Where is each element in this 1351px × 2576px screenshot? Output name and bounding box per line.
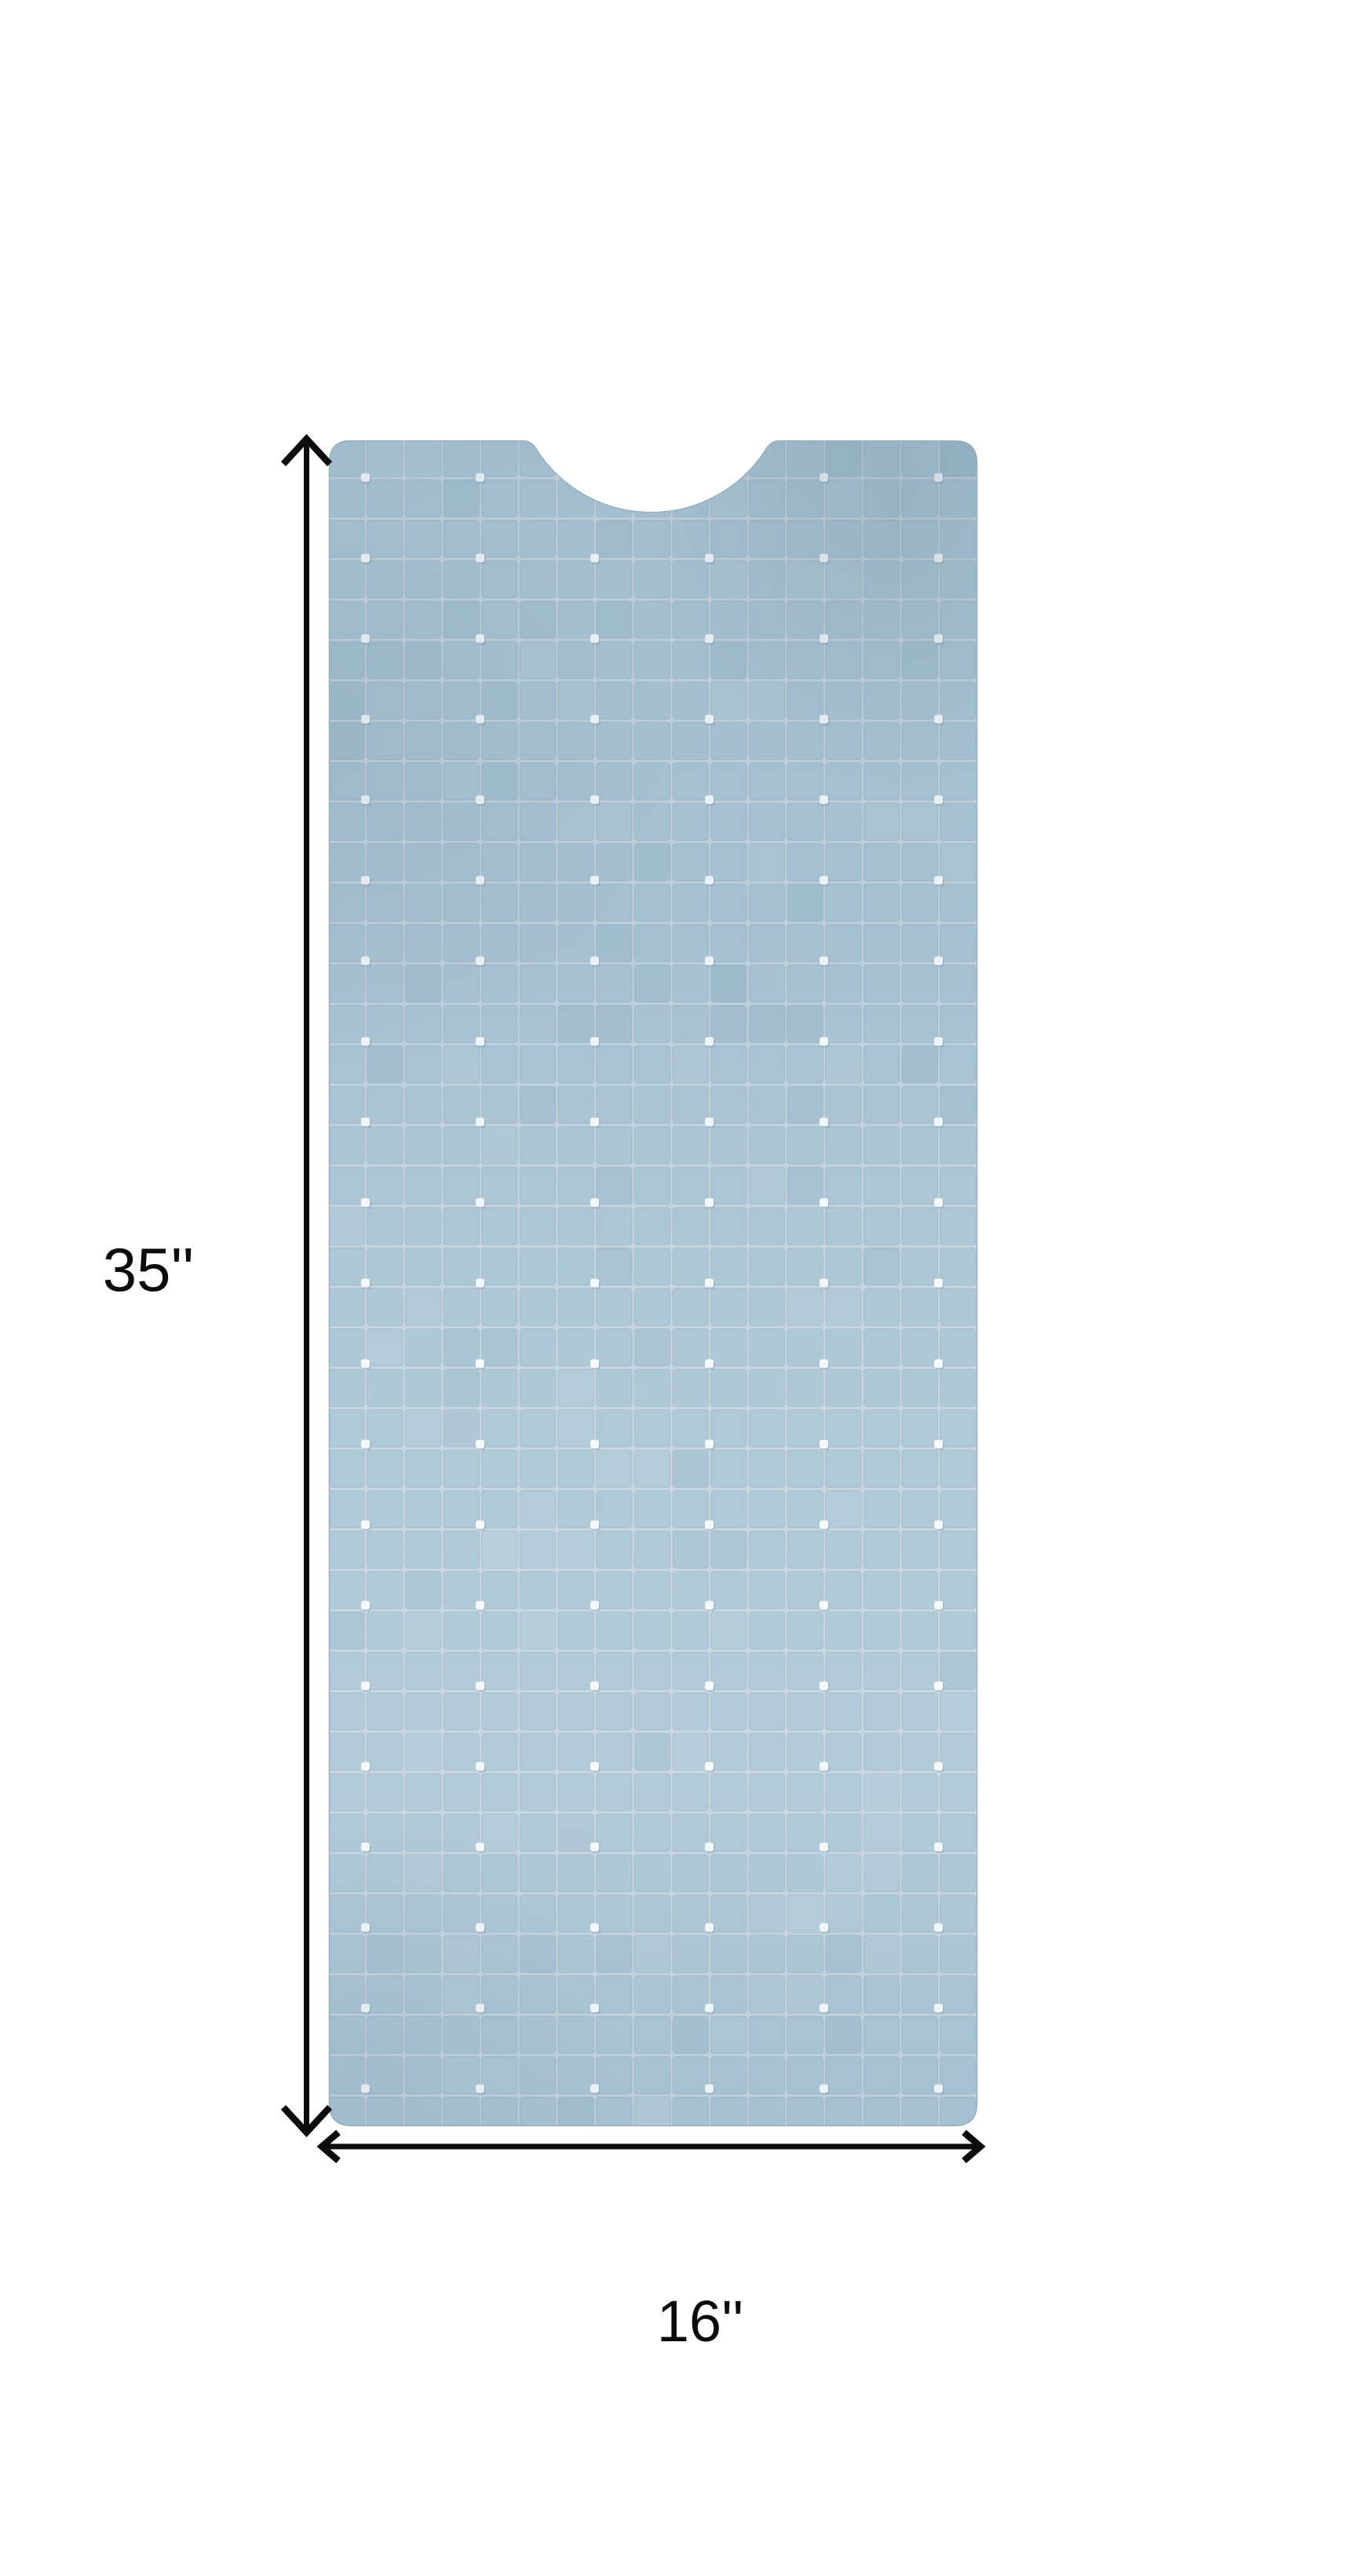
svg-text:16'': 16'': [657, 2289, 744, 2354]
svg-text:35'': 35'': [103, 1235, 195, 1304]
